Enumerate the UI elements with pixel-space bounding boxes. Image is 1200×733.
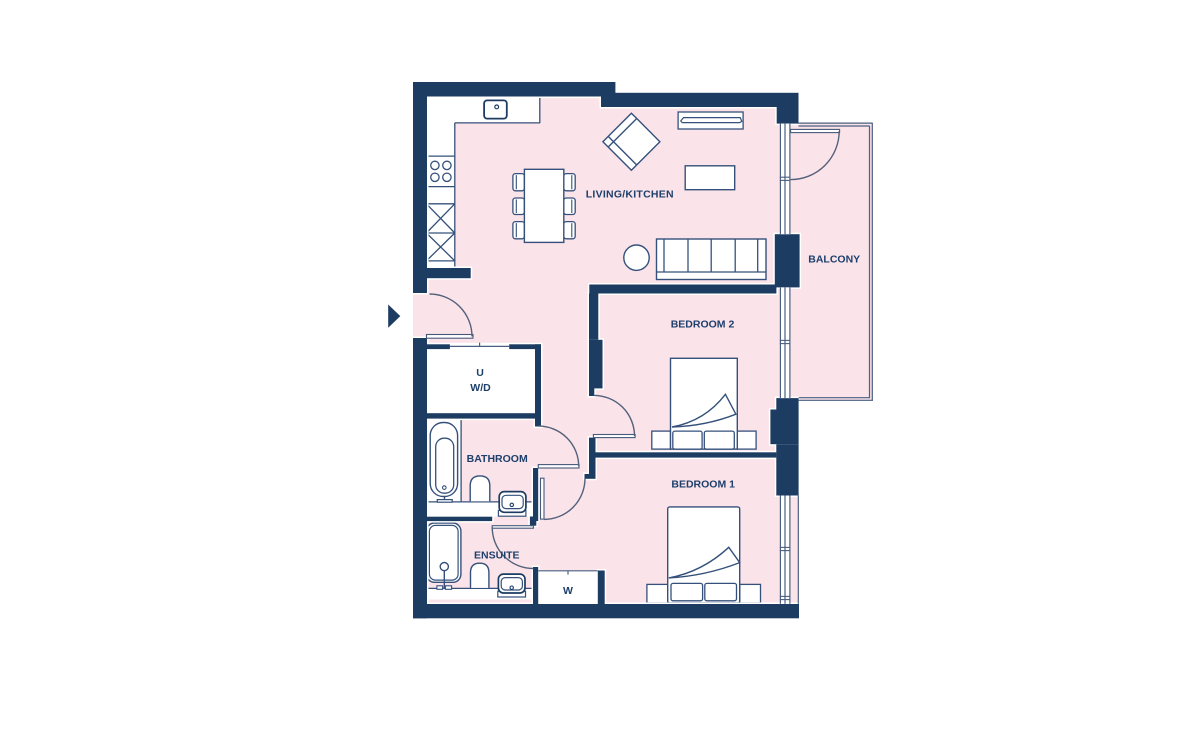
svg-text:BATHROOM: BATHROOM [467,453,528,465]
svg-text:BEDROOM 2: BEDROOM 2 [671,318,735,330]
svg-text:LIVING/KITCHEN: LIVING/KITCHEN [586,189,674,201]
svg-text:ENSUITE: ENSUITE [474,549,520,561]
svg-text:BALCONY: BALCONY [808,254,860,266]
svg-text:W/D: W/D [470,382,491,394]
svg-text:BEDROOM 1: BEDROOM 1 [671,478,735,490]
svg-text:U: U [476,367,484,379]
svg-text:W: W [563,585,573,597]
